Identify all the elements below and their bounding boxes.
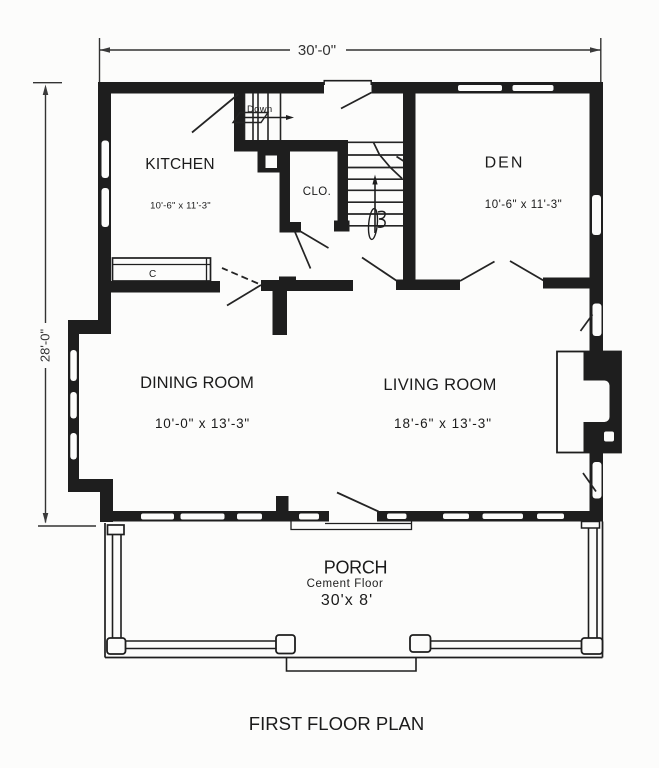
svg-text:DINING ROOM: DINING ROOM [140, 374, 254, 392]
svg-text:28'-0": 28'-0" [38, 329, 53, 363]
svg-text:18'-6" x 13'-3": 18'-6" x 13'-3" [394, 416, 492, 431]
svg-text:C: C [149, 269, 156, 280]
svg-text:LIVING ROOM: LIVING ROOM [383, 376, 496, 394]
svg-text:PORCH: PORCH [324, 558, 388, 578]
svg-text:DEN: DEN [485, 155, 525, 172]
svg-text:KITCHEN: KITCHEN [145, 156, 214, 173]
svg-text:10'-0" x 13'-3": 10'-0" x 13'-3" [155, 416, 250, 431]
svg-text:Down: Down [247, 104, 273, 115]
svg-text:Cement Floor: Cement Floor [307, 578, 384, 590]
svg-text:10'-6" x 11'-3": 10'-6" x 11'-3" [150, 201, 211, 212]
svg-text:10'-6" x 11'-3": 10'-6" x 11'-3" [485, 199, 562, 211]
svg-text:30'x 8': 30'x 8' [321, 592, 373, 609]
svg-text:CLO.: CLO. [303, 186, 331, 198]
svg-text:FIRST FLOOR PLAN: FIRST FLOOR PLAN [249, 713, 424, 734]
svg-text:30'-0": 30'-0" [298, 42, 336, 59]
